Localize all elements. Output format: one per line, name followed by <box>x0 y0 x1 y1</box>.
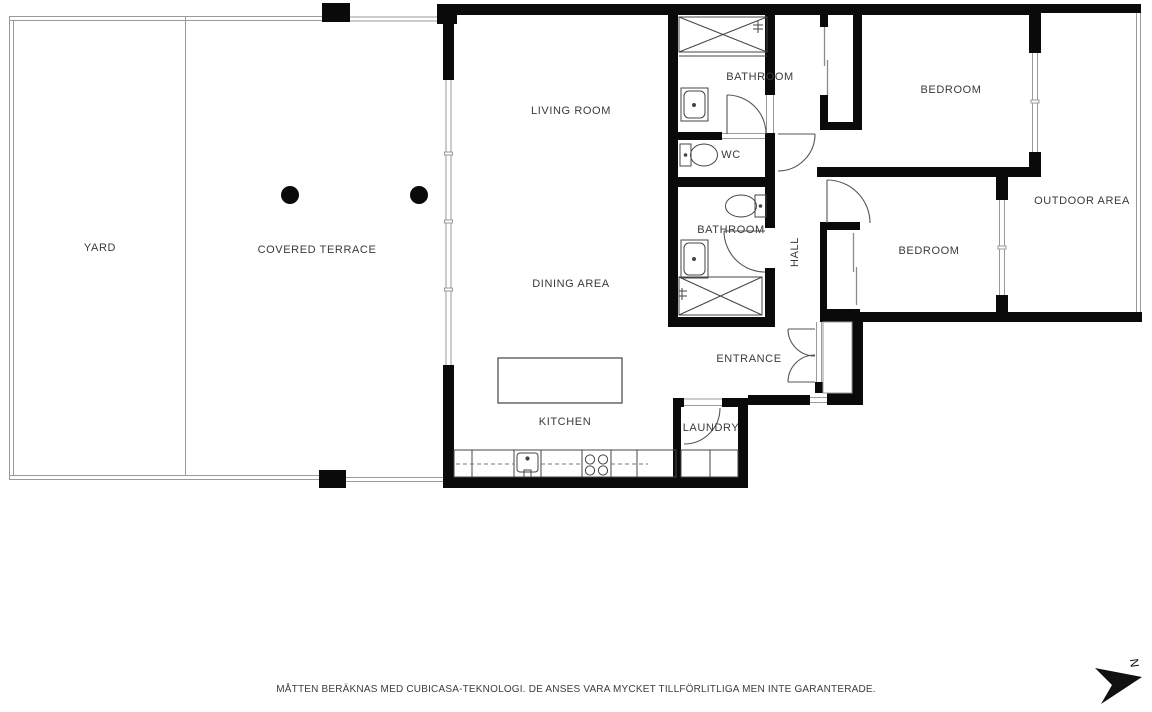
closet1-sliding-door <box>825 27 828 95</box>
kitchen-counter <box>454 450 676 477</box>
room-label-covered-terrace: COVERED TERRACE <box>258 244 377 256</box>
room-label-yard: YARD <box>84 242 116 254</box>
bedroom1-window <box>1031 53 1039 152</box>
entrance-closet <box>823 322 852 393</box>
kitchen-sink-icon <box>517 453 538 477</box>
room-label-hall: HALL <box>789 237 801 267</box>
floor-plan-page: YARD COVERED TERRACE LIVING ROOM DINING … <box>0 0 1152 712</box>
toilet-wc-icon <box>680 144 718 166</box>
closet2-sliding-door <box>854 233 857 305</box>
room-label-living-room: LIVING ROOM <box>531 105 611 117</box>
shower-upper-icon <box>679 17 767 56</box>
room-label-bathroom-lower: BATHROOM <box>697 224 765 236</box>
room-label-entrance: ENTRANCE <box>716 353 781 365</box>
room-label-kitchen: KITCHEN <box>539 416 591 428</box>
door-arcs <box>684 95 870 444</box>
room-label-laundry: LAUNDRY <box>683 422 740 434</box>
north-label: N <box>1127 658 1142 668</box>
room-label-dining-area: DINING AREA <box>532 278 610 290</box>
room-label-bedroom-upper: BEDROOM <box>920 84 981 96</box>
sink-lower-icon <box>681 240 708 278</box>
sink-upper-icon <box>681 88 708 121</box>
room-label-wc: WC <box>721 149 741 161</box>
laundry-counter <box>681 450 738 477</box>
room-label-bathroom-upper: BATHROOM <box>726 71 794 83</box>
room-label-outdoor-area: OUTDOOR AREA <box>1034 195 1130 207</box>
disclaimer-text: MÅTTEN BERÄKNAS MED CUBICASA-TEKNOLOGI. … <box>0 684 1152 695</box>
stove-icon <box>585 455 607 475</box>
entrance-window <box>810 398 827 403</box>
living-room-window <box>445 80 453 365</box>
outdoor-area-fence <box>1137 13 1141 312</box>
bedroom2-window <box>998 200 1006 295</box>
shower-lower-icon <box>679 277 762 315</box>
room-label-bedroom-lower: BEDROOM <box>898 245 959 257</box>
toilet-bathroom-icon <box>726 195 767 217</box>
kitchen-island <box>498 358 622 403</box>
